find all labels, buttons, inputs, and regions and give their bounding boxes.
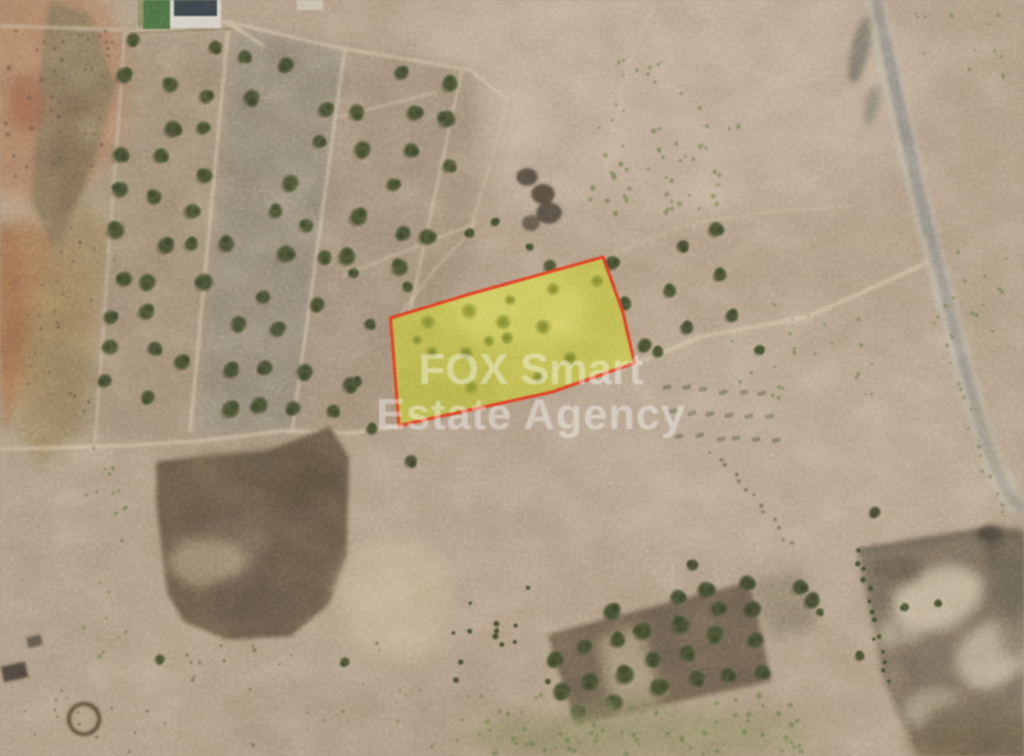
- svg-text:FOX Smart: FOX Smart: [419, 346, 644, 394]
- svg-text:Estate Agency: Estate Agency: [376, 391, 686, 439]
